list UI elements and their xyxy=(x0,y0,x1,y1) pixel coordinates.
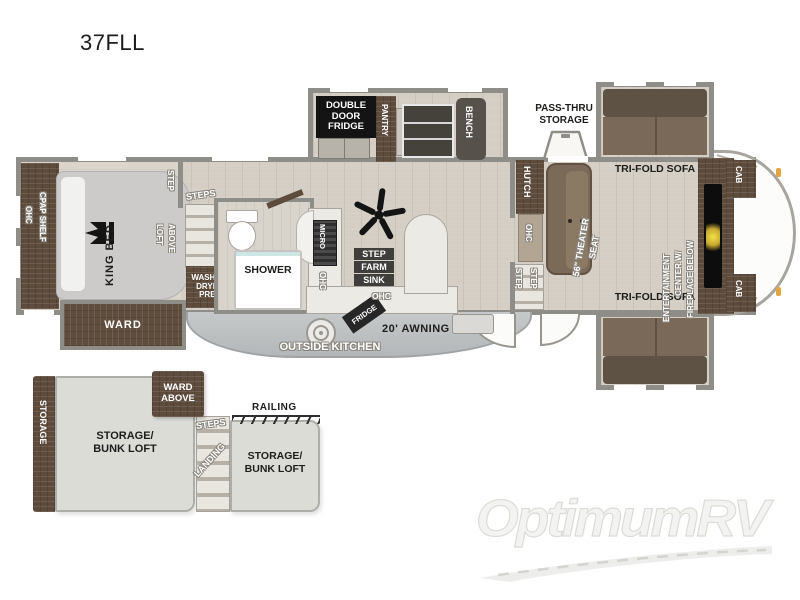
label-living-step-1: STEP xyxy=(514,268,523,308)
label-loft-right-1: STORAGE/ xyxy=(232,450,318,463)
fireplace-glow xyxy=(706,220,720,254)
outside-griddle xyxy=(452,314,494,334)
pass-thru-storage-label: PASS-THRU STORAGE xyxy=(524,103,604,126)
label-farm: FARM xyxy=(354,261,394,273)
label-shower: SHOWER xyxy=(236,264,300,276)
label-ent-3: FIREPLACE BELOW xyxy=(686,194,695,318)
label-outside-kitchen: OUTSIDE KITCHEN xyxy=(268,341,392,353)
label-loft-storage: STORAGE xyxy=(38,400,48,490)
label-bedroom-step: STEP xyxy=(166,170,175,206)
window xyxy=(13,196,20,228)
label-ward: WARD xyxy=(104,319,142,331)
label-ddf-3: FRIDGE xyxy=(326,122,366,132)
toilet xyxy=(228,221,256,251)
label-loft-right-2: BUNK LOFT xyxy=(232,463,318,476)
window xyxy=(614,79,646,86)
label-railing: RAILING xyxy=(252,402,297,413)
window xyxy=(330,85,368,92)
label-step-kitchen: STEP xyxy=(354,248,394,260)
railing-line xyxy=(232,415,320,424)
label-ent-2: CENTER W/ xyxy=(674,216,683,296)
label-cab-bottom: CAB xyxy=(734,280,743,308)
window xyxy=(24,310,54,317)
label-pass-thru-2: STORAGE xyxy=(524,115,604,127)
label-ohc-island: OHC xyxy=(372,291,391,301)
label-hutch: HUTCH xyxy=(522,166,532,210)
label-living-step-2: STEP xyxy=(529,268,538,308)
label-bench: BENCH xyxy=(464,106,474,154)
shower-threshold xyxy=(236,252,300,256)
trifold-sofa-top-back xyxy=(603,89,707,117)
entertainment-label: ENTERTAINMENT CENTER W/ FIREPLACE BELOW xyxy=(662,186,698,326)
label-awning: 20' AWNING xyxy=(382,323,450,335)
window xyxy=(13,246,20,278)
loft-bunk-left-label: STORAGE/ BUNK LOFT xyxy=(62,430,188,456)
page-title: 37FLL xyxy=(80,30,145,56)
label-ent-1: ENTERTAINMENT xyxy=(662,190,671,322)
double-door-fridge-label: DOUBLE DOOR FRIDGE xyxy=(316,96,376,138)
label-bedroom-ohc: OHC xyxy=(24,206,33,266)
ceiling-fan-icon xyxy=(350,188,408,242)
trifold-sofa-top-seat xyxy=(603,117,707,155)
label-loft-above-2: ABOVE xyxy=(167,224,176,274)
ward-slideout: WARD xyxy=(60,300,186,350)
steps-main xyxy=(185,204,215,268)
window xyxy=(448,85,482,92)
label-pantry: PANTRY xyxy=(380,104,389,156)
label-sink: SINK xyxy=(354,274,394,286)
loft-bunk-right-label: STORAGE/ BUNK LOFT xyxy=(232,450,318,475)
fridge-footprint xyxy=(318,138,370,159)
watermark-text: OptimumRV xyxy=(476,488,796,549)
entry-door-swing-2 xyxy=(540,314,580,346)
label-ohc-cabinet: OHC xyxy=(318,272,327,302)
window xyxy=(664,79,696,86)
window xyxy=(614,385,646,392)
bedroom-wall xyxy=(178,160,183,208)
label-loft-above-1: LOFT xyxy=(155,224,164,274)
label-trifold-sofa-top: TRI-FOLD SOFA xyxy=(596,163,714,175)
label-loft-left-1: STORAGE/ xyxy=(62,430,188,443)
optimumrv-watermark: OptimumRV xyxy=(476,486,796,586)
label-pass-thru-1: PASS-THRU xyxy=(524,103,604,115)
dinette-table xyxy=(402,104,454,158)
living-wall-top xyxy=(510,160,515,218)
label-ward-above-2: ABOVE xyxy=(161,394,195,405)
window xyxy=(212,154,268,161)
clearance-light-bottom xyxy=(776,287,781,296)
kitchen-peninsula xyxy=(404,214,448,294)
label-living-ohc: OHC xyxy=(524,224,533,254)
clearance-light-top xyxy=(776,168,781,177)
window xyxy=(78,154,126,161)
window xyxy=(664,385,696,392)
shower xyxy=(234,250,302,310)
label-cpap-shelf: CPAP SHELF xyxy=(38,192,47,284)
loft-ward-above: WARD ABOVE xyxy=(152,371,204,417)
label-cab-top: CAB xyxy=(734,166,743,194)
label-micro: MICRO xyxy=(318,224,327,264)
label-loft-left-2: BUNK LOFT xyxy=(62,443,188,456)
floorplan-page: 37FLL OHC CPAP SHELF KING BED STEP LOFT … xyxy=(0,0,800,600)
window xyxy=(548,156,588,162)
trifold-sofa-bottom-back xyxy=(603,356,707,384)
label-king-bed: KING BED xyxy=(104,200,116,286)
